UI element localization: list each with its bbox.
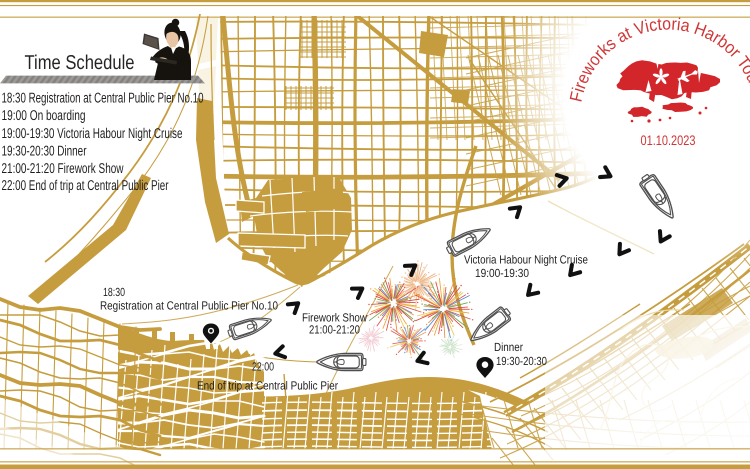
svg-text:22:00: 22:00 — [252, 360, 274, 374]
svg-text:Registration at Central Public: Registration at Central Public Pier No.1… — [100, 299, 278, 313]
svg-text:Dinner: Dinner — [494, 340, 523, 354]
svg-text:19:30-20:30 Dinner: 19:30-20:30 Dinner — [2, 143, 87, 159]
svg-text:19:00-19:30: 19:00-19:30 — [475, 266, 529, 280]
svg-text:21:00-21:20 Firework Show: 21:00-21:20 Firework Show — [2, 161, 125, 177]
svg-text:19:00-19:30 Victoria Habour N: 19:00-19:30 Victoria Habour Night Cruise — [2, 126, 183, 142]
svg-text:18:30 Registration at Central: 18:30 Registration at Central Public Pie… — [2, 91, 204, 107]
svg-text:Time Schedule: Time Schedule — [25, 52, 135, 74]
svg-text:19:30-20:30: 19:30-20:30 — [496, 354, 547, 368]
svg-text:18:30: 18:30 — [103, 285, 125, 299]
svg-text:19:00 On boarding: 19:00 On boarding — [2, 108, 86, 124]
svg-text:01.10.2023: 01.10.2023 — [641, 133, 696, 148]
svg-text:End of trip at Central Public: End of trip at Central Public Pier — [197, 379, 338, 393]
svg-text:Victoria Habour Night Cruise: Victoria Habour Night Cruise — [464, 253, 588, 267]
svg-text:21:00-21:20: 21:00-21:20 — [309, 323, 360, 337]
svg-text:22:00 End of trip at Central P: 22:00 End of trip at Central Public Pier — [2, 178, 169, 194]
